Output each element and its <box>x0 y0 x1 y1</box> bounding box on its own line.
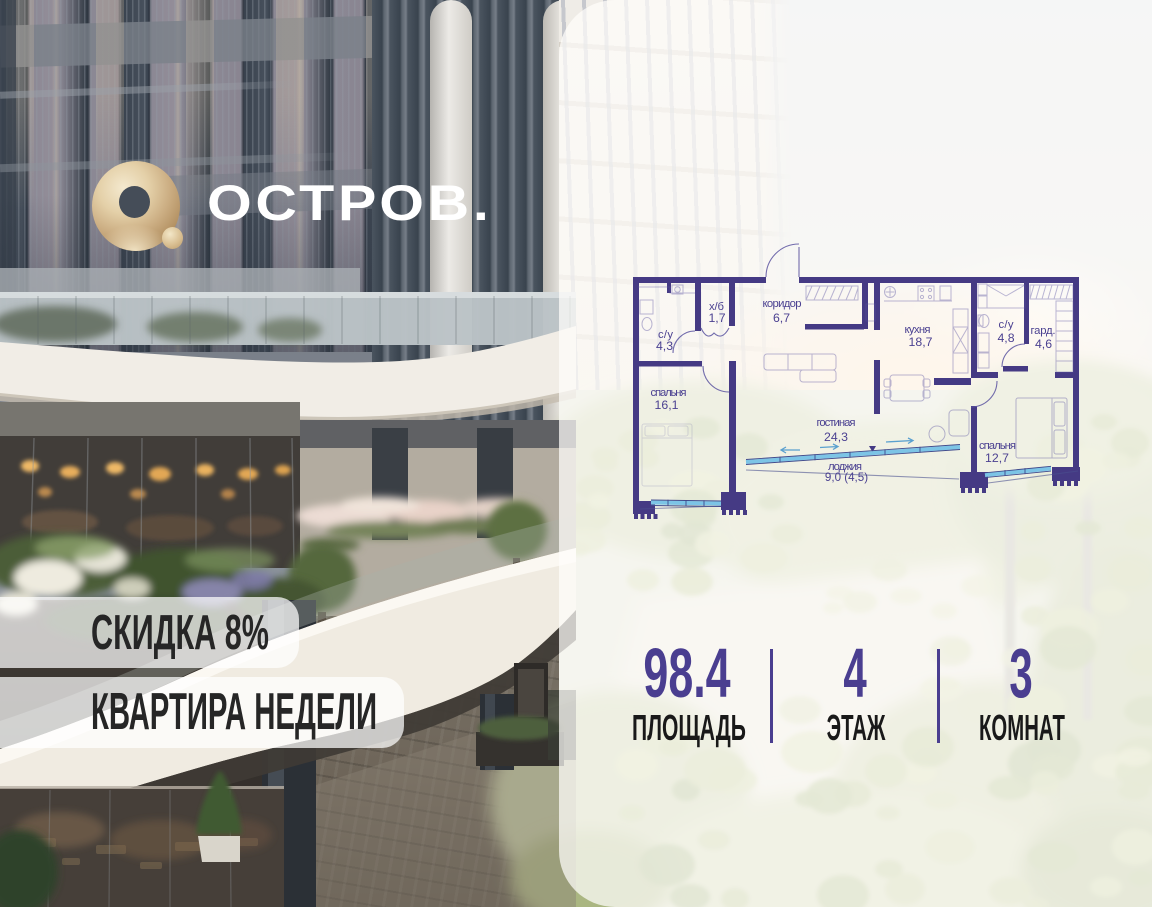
svg-text:4,6: 4,6 <box>1035 337 1052 351</box>
svg-text:9,0 (4,5): 9,0 (4,5) <box>825 471 868 484</box>
svg-text:с/у: с/у <box>999 319 1014 331</box>
svg-text:6,7: 6,7 <box>773 311 790 325</box>
svg-text:16,1: 16,1 <box>655 398 679 412</box>
svg-text:коридор: коридор <box>763 298 802 310</box>
svg-text:18,7: 18,7 <box>909 335 933 349</box>
svg-text:гостиная: гостиная <box>817 417 856 429</box>
svg-text:1,7: 1,7 <box>708 311 725 325</box>
svg-text:гард.: гард. <box>1031 325 1056 337</box>
svg-text:12,7: 12,7 <box>985 451 1009 465</box>
svg-text:4,8: 4,8 <box>997 331 1014 345</box>
svg-text:24,3: 24,3 <box>824 430 848 444</box>
svg-text:4,3: 4,3 <box>656 339 673 353</box>
